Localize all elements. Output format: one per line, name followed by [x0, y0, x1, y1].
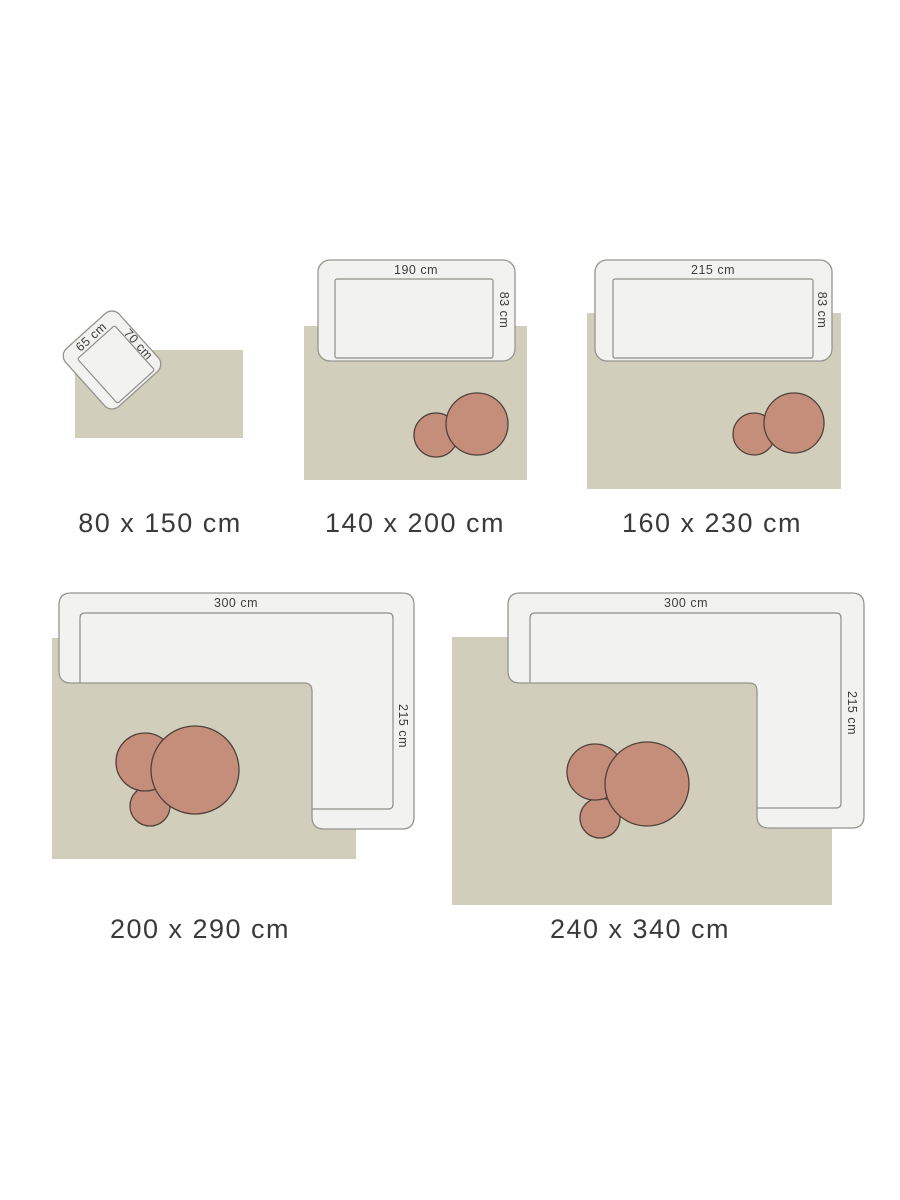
- corner-sofa-depth-dim: 215 cm: [845, 691, 859, 735]
- size-label-160x230: 160 x 230 cm: [622, 508, 802, 538]
- coffee-table: [151, 726, 239, 814]
- corner-sofa-width-dim: 300 cm: [214, 596, 258, 610]
- coffee-table: [605, 742, 689, 826]
- rug-size-guide: 65 cm 70 cm 80 x 150 cm 190 cm 83 cm 140…: [0, 0, 900, 1200]
- sofa-width-dim: 190 cm: [394, 263, 438, 277]
- coffee-table: [446, 393, 508, 455]
- corner-sofa-depth-dim: 215 cm: [396, 704, 410, 748]
- sofa-depth-dim: 83 cm: [815, 292, 829, 329]
- size-label-140x200: 140 x 200 cm: [325, 508, 505, 538]
- sofa-width-dim: 215 cm: [691, 263, 735, 277]
- panel-240x340: 300 cm 215 cm 240 x 340 cm: [452, 593, 864, 944]
- sofa-depth-dim: 83 cm: [497, 292, 511, 329]
- corner-sofa-width-dim: 300 cm: [664, 596, 708, 610]
- coffee-table: [764, 393, 824, 453]
- size-guide-canvas: 65 cm 70 cm 80 x 150 cm 190 cm 83 cm 140…: [0, 0, 900, 1200]
- panel-80x150: 65 cm 70 cm 80 x 150 cm: [59, 306, 243, 538]
- size-label-200x290: 200 x 290 cm: [110, 914, 290, 944]
- panel-200x290: 300 cm 215 cm 200 x 290 cm: [52, 593, 414, 944]
- panel-140x200: 190 cm 83 cm 140 x 200 cm: [304, 260, 527, 538]
- size-label-240x340: 240 x 340 cm: [550, 914, 730, 944]
- size-label-80x150: 80 x 150 cm: [78, 508, 242, 538]
- panel-160x230: 215 cm 83 cm 160 x 230 cm: [587, 260, 841, 538]
